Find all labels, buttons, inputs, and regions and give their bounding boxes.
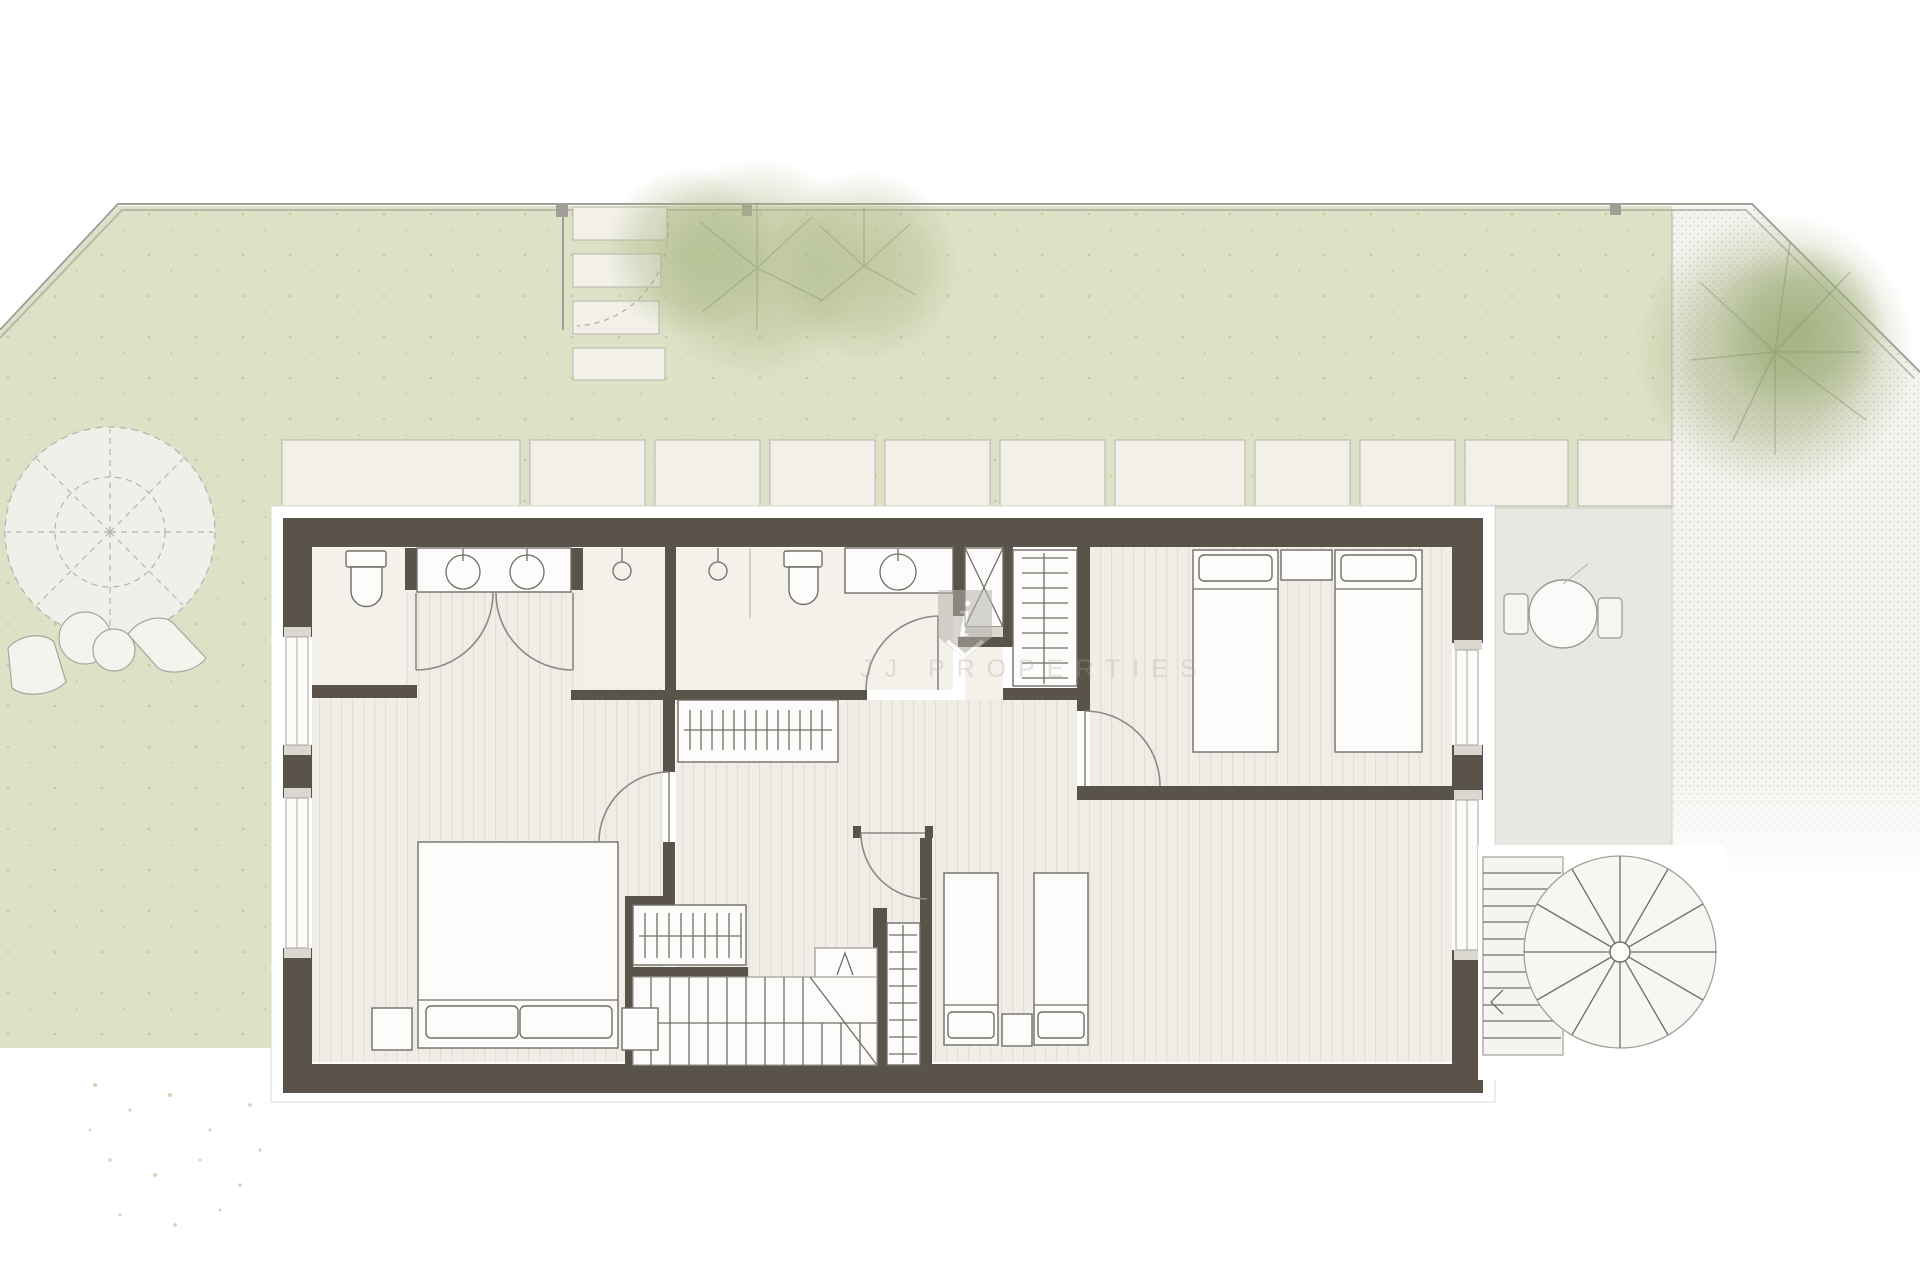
single-bed [1335,550,1422,752]
pillow [948,1012,994,1038]
terrace-chair [1504,594,1528,634]
double-bed [418,842,618,1048]
exterior-wall-top [283,518,1483,547]
roof-terrace [1495,508,1672,848]
pillow [1341,555,1416,581]
pillow [426,1006,518,1038]
pillow [1199,555,1272,581]
floor-plan-drawing: i JJ PROPERTIES [0,0,1920,1280]
parasol [5,427,215,637]
pillow [520,1006,612,1038]
exterior-wall-bottom [283,1064,1483,1093]
linen-closet [887,923,920,1065]
shower-room-floor [583,548,676,688]
double-vanity [417,548,571,592]
vanity [845,548,953,593]
wardrobe [633,905,746,965]
terrace-chair [1598,598,1622,638]
watermark-badge-letter: i [957,592,972,648]
spiral-staircase [1478,845,1726,1080]
toilet [346,551,386,607]
spiral-center-pole [1610,942,1630,962]
nightstand [622,1008,658,1050]
nightstand [372,1008,412,1050]
nightstand [1281,550,1332,580]
bedroom-divider-wall [1077,786,1452,800]
single-bed [1034,873,1088,1045]
nightstand [1002,1014,1032,1046]
pillow [1038,1012,1084,1038]
single-bed [1193,550,1278,752]
toilet [784,551,822,605]
large-tree [1635,212,1915,492]
floor-plan-page: i JJ PROPERTIES [0,0,1920,1280]
exterior-wall-left [283,518,312,637]
wardrobe [678,700,838,762]
watermark-text: JJ PROPERTIES [860,655,1209,683]
round-table [1529,580,1597,648]
exterior-wall-right [1452,547,1483,643]
single-bed [944,873,998,1045]
